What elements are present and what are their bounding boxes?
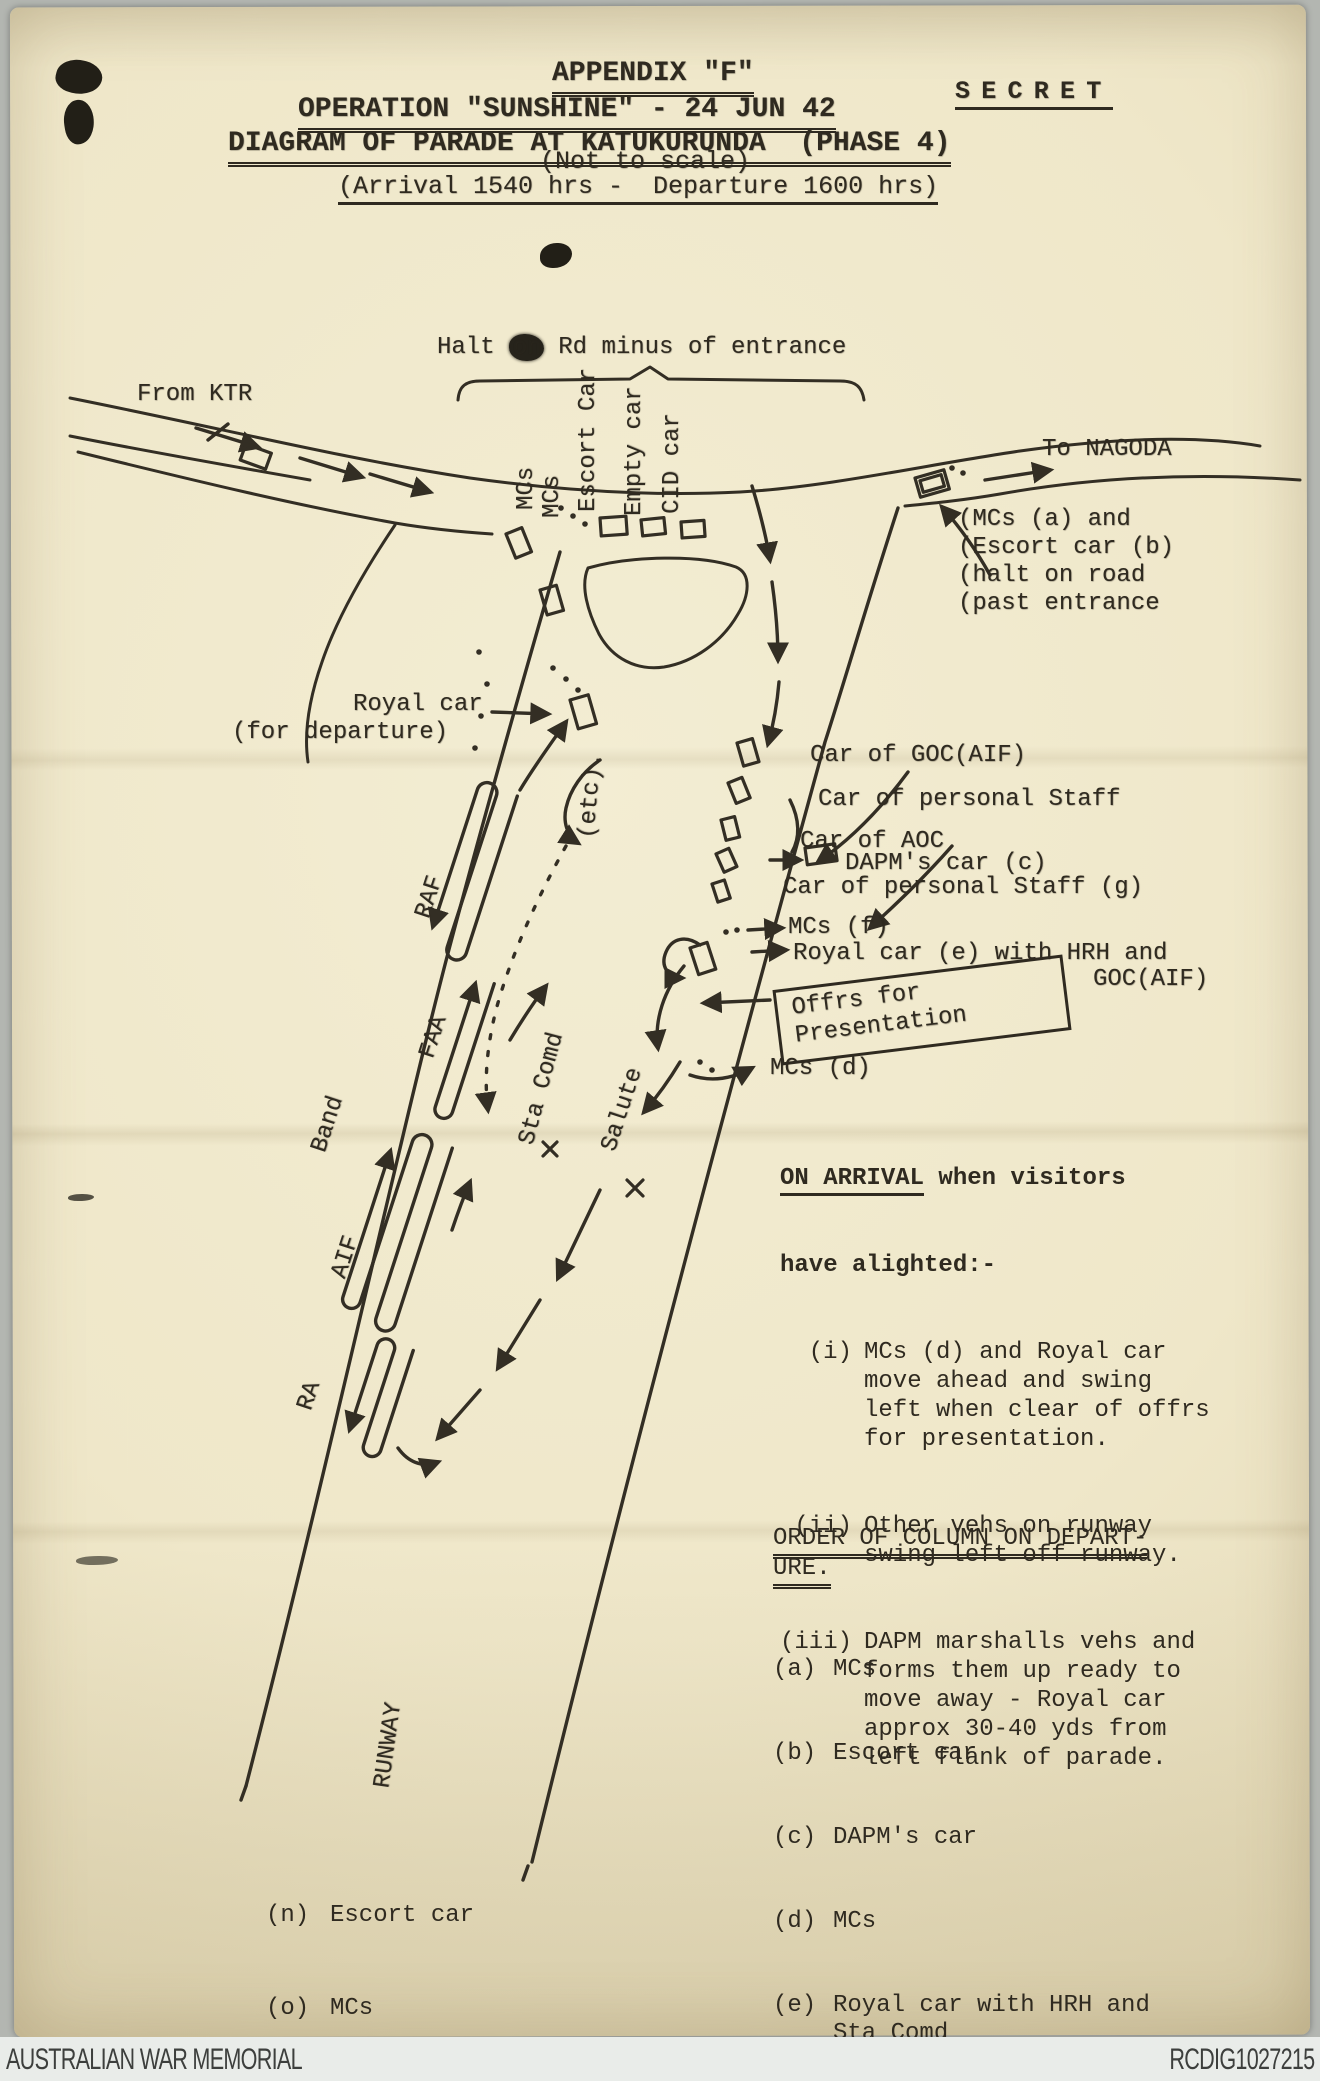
on-arrival-heading: ON ARRIVAL when visitors <box>780 1164 1210 1193</box>
halt-past-entrance-note: (MCs (a) and(Escort car (b)(halt on road… <box>958 506 1174 618</box>
royal-car-departure-label: Royal car <box>353 691 483 719</box>
position-x-marks <box>543 1142 643 1196</box>
times-note: (Arrival 1540 hrs - Departure 1600 hrs) <box>338 173 938 205</box>
parade-island <box>585 558 747 668</box>
queue-car-personal-staff-g: Car of personal Staff (g) <box>783 874 1143 902</box>
mcs-d-label: MCs (d) <box>770 1055 871 1083</box>
scale-note: (Not to scale) <box>540 150 750 174</box>
list-item-b: (b)Escort car <box>773 1740 1236 1768</box>
archive-footer-bar: AUSTRALIAN WAR MEMORIAL RCDIG1027215 <box>0 2037 1320 2081</box>
archive-id: RCDIG1027215 <box>1169 2043 1314 2077</box>
from-ktr-label: From KTR <box>137 381 252 409</box>
royal-car-departure-label2: (for departure) <box>232 719 448 747</box>
to-nagoda-label: To NAGODA <box>1042 436 1172 464</box>
column-label-mcs-2: MCs <box>540 475 566 518</box>
departure-heading: ORDER OF COLUMN ON DEPART-URE. <box>773 1524 1236 1584</box>
queue-car-personal-staff: Car of personal Staff <box>818 786 1120 814</box>
queue-car-goc-aif: Car of GOC(AIF) <box>810 742 1026 770</box>
appendix-title: APPENDIX "F" <box>552 58 754 97</box>
queue-goc-aif-2: GOC(AIF) <box>1093 966 1208 994</box>
list-item-d: (d)MCs <box>773 1908 1236 1936</box>
list-item-a: (a)MCs <box>773 1656 1236 1684</box>
scanned-document-page: APPENDIX "F" SECRET OPERATION "SUNSHINE"… <box>0 0 1320 2081</box>
queue-mcs-f: MCs (f) <box>788 914 889 942</box>
halt-brace <box>458 367 864 400</box>
column-label-cid-car: CID car <box>660 413 686 514</box>
list-item-n: (n)Escort car <box>266 1900 488 1931</box>
arrival-item-i: (i)MCs (d) and Royal carmove ahead and s… <box>780 1338 1210 1454</box>
archive-source-label: AUSTRALIAN WAR MEMORIAL <box>6 2043 302 2077</box>
ink-blot: on <box>509 334 544 361</box>
list-item-c: (c)DAPM's car <box>773 1824 1236 1852</box>
column-label-mcs-1: MCs <box>514 467 540 510</box>
on-arrival-heading-2: have alighted:- <box>780 1251 1210 1280</box>
column-label-escort-car: Escort Car <box>576 368 602 512</box>
departure-order-section: ORDER OF COLUMN ON DEPART-URE. (a)MCs (b… <box>773 1468 1236 2081</box>
halt-note: Halt on Rd minus of entrance <box>437 334 846 362</box>
list-item-o: (o)MCs <box>266 1993 488 2024</box>
column-label-empty-car: Empty car <box>622 386 648 516</box>
classification-secret: SECRET <box>955 78 1113 110</box>
